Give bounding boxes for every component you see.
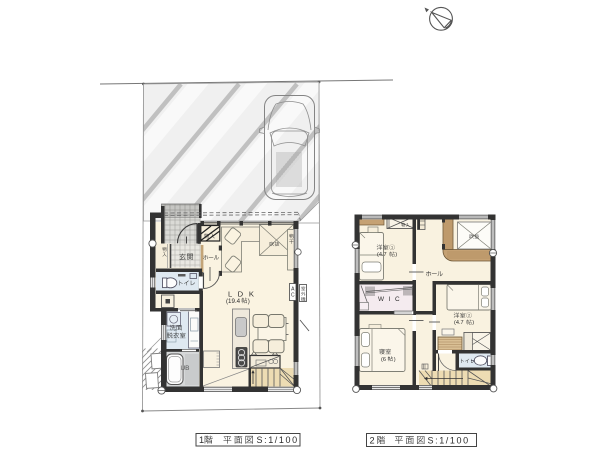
svg-text:): )	[472, 320, 474, 326]
svg-text:1: 1	[199, 435, 204, 445]
svg-text:S:1/100: S:1/100	[257, 435, 299, 445]
svg-text:): )	[394, 357, 396, 363]
svg-text:C: C	[291, 293, 295, 299]
svg-text:): )	[395, 252, 397, 258]
svg-text:(6: (6	[381, 357, 386, 363]
svg-text:(4.7: (4.7	[454, 320, 464, 326]
svg-text:S:1/100: S:1/100	[428, 435, 470, 445]
svg-text:(19.4: (19.4	[226, 298, 241, 305]
svg-text:(4.7: (4.7	[377, 252, 387, 258]
svg-text:): )	[248, 298, 250, 305]
svg-text:W I C: W I C	[378, 296, 401, 303]
svg-text:2: 2	[370, 435, 375, 445]
svg-text:UB: UB	[180, 365, 189, 372]
